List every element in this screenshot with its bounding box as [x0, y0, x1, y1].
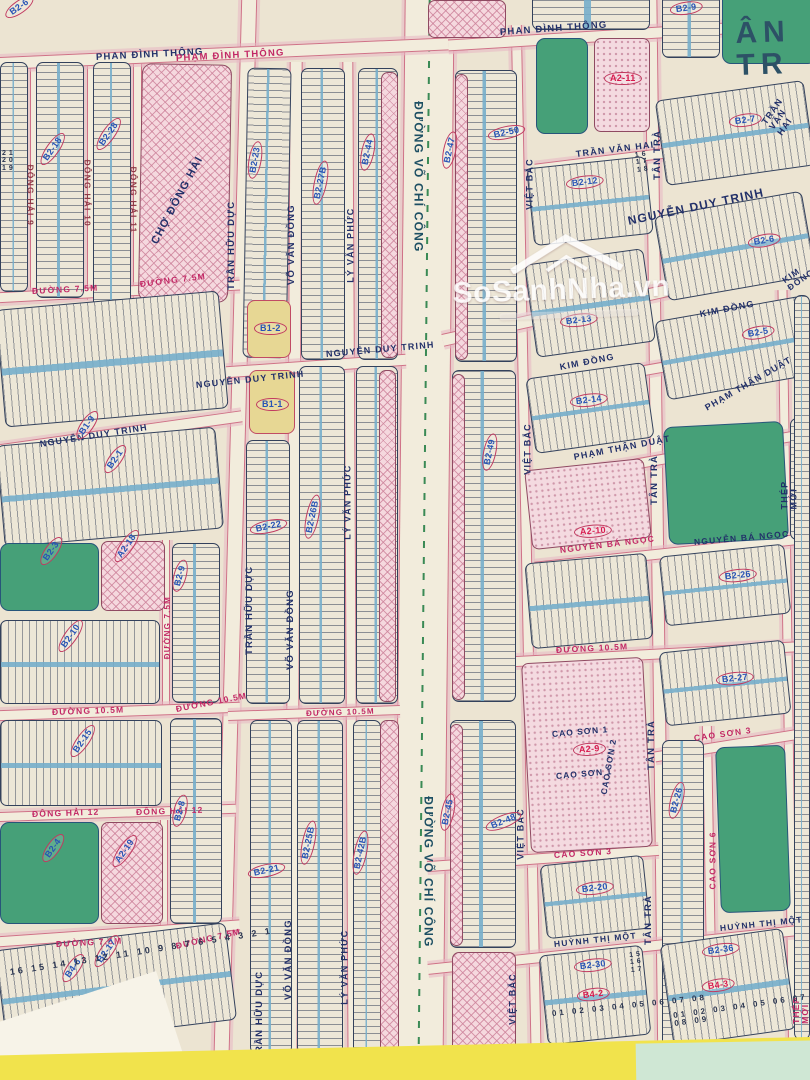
block-mid-f-col — [524, 553, 653, 649]
block-b2-27 — [658, 640, 791, 727]
block-hatch-col-e3 — [450, 724, 463, 946]
block-b2-14 — [525, 362, 654, 454]
block-b2-42b — [353, 720, 381, 1056]
block-b2-7 — [655, 80, 810, 186]
street-duong-10-5m-center — [228, 705, 400, 721]
block-strip-east-edge — [794, 295, 810, 1040]
cadastral-map-photo: PHAN ĐÌNH THÔNGPHẠM ĐÌNH THÔNGPHAN ĐÌNH … — [0, 0, 810, 1080]
block-hatch-col-e2 — [452, 374, 465, 700]
block-hatch-se-vcc — [452, 952, 516, 1058]
block-b1-1 — [249, 370, 295, 434]
block-b2-18 — [36, 62, 84, 298]
block-b2-27b — [301, 68, 345, 360]
block-park-ne-corner — [722, 0, 810, 64]
block-b2-25b — [297, 720, 343, 1054]
block-b2-36-b4-3 — [660, 928, 797, 1046]
block-hatch-vcc-west-top — [381, 72, 398, 358]
watermark: SoSanhNha.vn — [451, 228, 684, 322]
block-park-west-2 — [0, 822, 99, 924]
block-b2-21 — [250, 720, 292, 1054]
block-a2-10 — [524, 458, 652, 550]
street-label-vi-t-b-c: VIỆT BẮC — [516, 808, 525, 860]
block-a2-19 — [101, 822, 163, 924]
block-b2-8 — [170, 718, 222, 924]
block-strip-west-edge — [0, 62, 28, 292]
block-b1-2 — [247, 300, 291, 358]
watermark-roof-icon — [451, 228, 682, 276]
street-vo-chi-cong — [393, 0, 455, 1080]
block-hatch-vcc-east-top — [428, 0, 506, 38]
block-park-west-1 — [0, 543, 99, 611]
block-b2-9-west — [172, 543, 220, 703]
block-cao-son-a2-9 — [521, 657, 653, 853]
block-hatch-vcc-west-bot — [380, 720, 399, 1060]
block-a2-18 — [101, 541, 165, 611]
block-b2-28 — [93, 62, 131, 308]
block-b1-9-b2-1 — [0, 427, 224, 548]
watermark-text: SoSanhNha.vn — [452, 269, 683, 311]
block-cho-dong-hai — [138, 63, 232, 303]
block-b2-10 — [0, 620, 160, 704]
block-park-east-mid — [663, 421, 789, 545]
block-b2-30-b4-2 — [539, 945, 652, 1045]
block-a2-11 — [594, 38, 650, 132]
block-top-f-col — [532, 0, 650, 30]
block-park-se — [715, 745, 791, 913]
block-b2-9-ne — [662, 0, 720, 58]
block-row-upper-west — [0, 290, 229, 427]
block-b2-26b — [299, 366, 345, 704]
block-hatch-vcc-west-mid — [379, 370, 396, 702]
paper-edge-mint — [636, 1040, 810, 1080]
block-b2-26-east — [659, 544, 792, 627]
block-b2-20 — [539, 855, 650, 939]
block-park-a2-11-west — [536, 38, 588, 134]
block-label-b2-6: B2-6 — [2, 0, 37, 22]
block-b2-22 — [246, 440, 290, 704]
block-b2-15 — [0, 720, 162, 806]
